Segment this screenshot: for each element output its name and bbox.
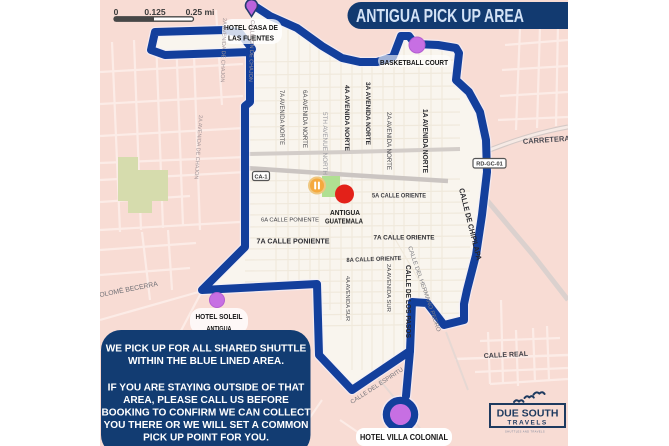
svg-text:2A AVENIDA NORTE: 2A AVENIDA NORTE xyxy=(385,112,391,170)
svg-text:DUE SOUTH: DUE SOUTH xyxy=(497,408,559,420)
svg-text:7A CALLE ORIENTE: 7A CALLE ORIENTE xyxy=(374,235,435,242)
svg-text:6A CALLE PONIENTE: 6A CALLE PONIENTE xyxy=(261,218,319,224)
svg-text:0: 0 xyxy=(114,7,119,17)
svg-text:ANTIGUA: ANTIGUA xyxy=(330,210,360,217)
svg-text:WITHIN THE BLUE LINED AREA.: WITHIN THE BLUE LINED AREA. xyxy=(128,356,284,367)
svg-text:IF YOU ARE STAYING OUTSIDE OF: IF YOU ARE STAYING OUTSIDE OF THAT xyxy=(108,383,305,394)
svg-text:BOOKING TO CONFIRM WE CAN COLL: BOOKING TO CONFIRM WE CAN COLLECT xyxy=(102,408,312,419)
svg-text:BASKETBALL COURT: BASKETBALL COURT xyxy=(380,58,448,67)
svg-text:6A AVENIDA NORTE: 6A AVENIDA NORTE xyxy=(301,90,307,148)
svg-text:RD-GC-01: RD-GC-01 xyxy=(476,162,502,168)
svg-text:SHUTTLES AND TRAVELS: SHUTTLES AND TRAVELS xyxy=(505,430,545,434)
svg-text:0.25 mi: 0.25 mi xyxy=(186,7,215,17)
svg-text:5A CALLE ORIENTE: 5A CALLE ORIENTE xyxy=(372,193,426,200)
svg-text:PICK UP POINT FOR YOU.: PICK UP POINT FOR YOU. xyxy=(143,433,269,444)
svg-text:0.125: 0.125 xyxy=(144,7,166,17)
svg-text:WE PICK UP FOR ALL SHARED SHUT: WE PICK UP FOR ALL SHARED SHUTTLE xyxy=(106,344,307,355)
svg-text:2A AVENIDA SUR: 2A AVENIDA SUR xyxy=(385,264,391,312)
svg-text:4A AVENIDA SUR: 4A AVENIDA SUR xyxy=(344,276,350,321)
svg-text:CALLE DE LOS PASOS: CALLE DE LOS PASOS xyxy=(404,265,411,338)
svg-text:7A AVENIDA NORTE: 7A AVENIDA NORTE xyxy=(278,90,284,145)
svg-text:TRAVELS: TRAVELS xyxy=(507,420,547,427)
svg-text:HOTEL SOLEIL: HOTEL SOLEIL xyxy=(196,312,243,321)
svg-text:4A AVENIDA NORTE: 4A AVENIDA NORTE xyxy=(343,85,350,151)
svg-text:1A AVENIDA NORTE: 1A AVENIDA NORTE xyxy=(421,109,428,173)
svg-text:HOTEL VILLA COLONIAL: HOTEL VILLA COLONIAL xyxy=(360,433,448,442)
svg-text:AREA, PLEASE CALL US BEFORE: AREA, PLEASE CALL US BEFORE xyxy=(123,395,289,406)
svg-text:GUATEMALA: GUATEMALA xyxy=(325,219,363,226)
svg-text:ANTIGUA PICK UP AREA: ANTIGUA PICK UP AREA xyxy=(356,5,524,26)
svg-text:7A CALLE PONIENTE: 7A CALLE PONIENTE xyxy=(257,239,330,246)
svg-text:3A AVENIDA NORTE: 3A AVENIDA NORTE xyxy=(364,82,371,145)
svg-text:5TH AVENUE NORTH: 5TH AVENUE NORTH xyxy=(321,112,327,175)
svg-text:CA-1: CA-1 xyxy=(254,174,267,180)
svg-text:YOU THERE OR WE WILL SET A COM: YOU THERE OR WE WILL SET A COMMON xyxy=(104,420,309,431)
